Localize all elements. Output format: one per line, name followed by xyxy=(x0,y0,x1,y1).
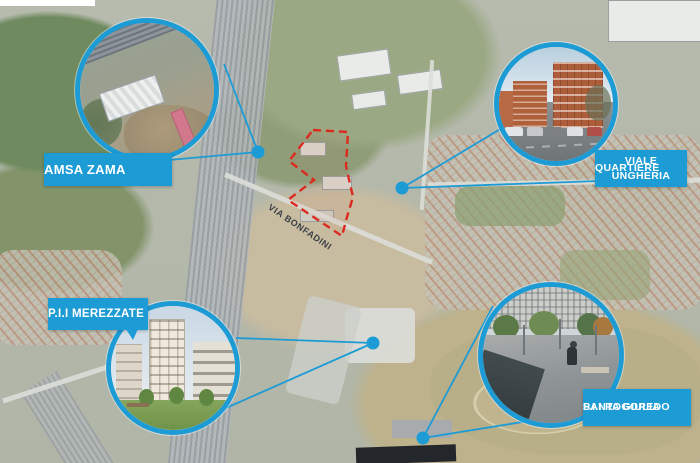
label-text: SANTA GIULIA xyxy=(583,400,660,415)
tree xyxy=(585,85,611,121)
map-marker-viale-ungheria[interactable] xyxy=(396,182,409,195)
apartment-block xyxy=(495,91,515,127)
tree xyxy=(529,311,559,337)
label-quartiere-viale-ungheria[interactable]: QUARTIERE VIALE UNGHERIA xyxy=(595,150,687,187)
young-tree xyxy=(169,387,184,404)
label-text: VIALE UNGHERIA xyxy=(595,154,687,184)
lamp-post xyxy=(523,325,525,355)
person-sitting xyxy=(567,347,577,365)
map-marker-amsa-zama[interactable] xyxy=(252,146,265,159)
label-pii-merezzate[interactable]: P.I.I MEREZZATE xyxy=(48,298,148,330)
callout-photo-viale-ungheria[interactable] xyxy=(494,42,618,166)
parked-car xyxy=(567,127,583,136)
label-text: P.I.I MEREZZATE xyxy=(48,307,144,322)
label-text: AMSA ZAMA xyxy=(44,162,126,177)
map-marker-merezzate[interactable] xyxy=(367,337,380,350)
map-collage: VIA BONFADINI xyxy=(0,0,700,463)
map-marker-rogoredo[interactable] xyxy=(417,432,430,445)
bench xyxy=(127,403,149,407)
parked-car xyxy=(547,127,563,136)
parked-car xyxy=(527,127,543,136)
label-pii-rogoredo-santa-giulia[interactable]: P.I.I ROGOREDO SANTA GIULIA xyxy=(583,389,691,426)
stone-bench xyxy=(581,367,609,373)
label-amsa-zama[interactable]: AMSA ZAMA xyxy=(44,153,172,186)
callout-photo-amsa-zama[interactable] xyxy=(75,18,219,162)
parked-car xyxy=(505,127,523,136)
parked-car xyxy=(587,127,602,136)
lamp-post xyxy=(559,319,561,349)
young-tree xyxy=(199,389,214,406)
apartment-block xyxy=(513,81,547,127)
lamp-post xyxy=(595,325,597,355)
